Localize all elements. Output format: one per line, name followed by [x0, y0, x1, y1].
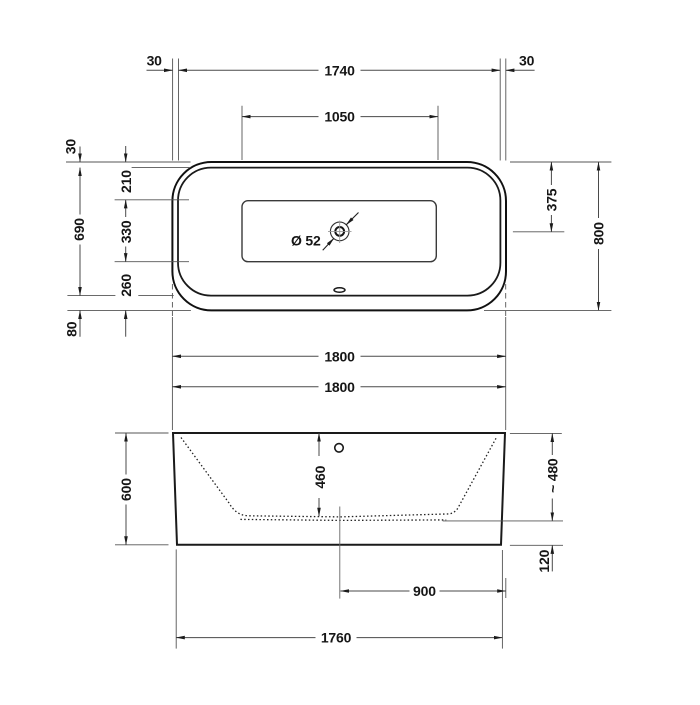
- svg-text:375: 375: [544, 188, 560, 211]
- svg-text:~ 480: ~ 480: [545, 458, 561, 493]
- svg-text:600: 600: [118, 478, 134, 501]
- svg-text:80: 80: [64, 321, 80, 337]
- svg-text:1050: 1050: [324, 109, 355, 125]
- svg-text:30: 30: [147, 53, 163, 69]
- svg-text:1740: 1740: [324, 62, 355, 78]
- svg-text:690: 690: [71, 218, 87, 241]
- svg-text:1800: 1800: [324, 379, 355, 395]
- svg-text:800: 800: [591, 222, 607, 245]
- svg-text:900: 900: [413, 583, 436, 599]
- svg-text:120: 120: [536, 549, 552, 572]
- svg-text:460: 460: [312, 465, 328, 488]
- svg-text:1800: 1800: [324, 348, 355, 364]
- svg-text:330: 330: [118, 220, 134, 243]
- svg-text:Ø 52: Ø 52: [291, 233, 321, 249]
- svg-text:1760: 1760: [321, 630, 352, 646]
- svg-text:210: 210: [118, 170, 134, 193]
- svg-text:30: 30: [519, 53, 535, 69]
- svg-text:260: 260: [118, 274, 134, 297]
- svg-text:30: 30: [62, 139, 78, 155]
